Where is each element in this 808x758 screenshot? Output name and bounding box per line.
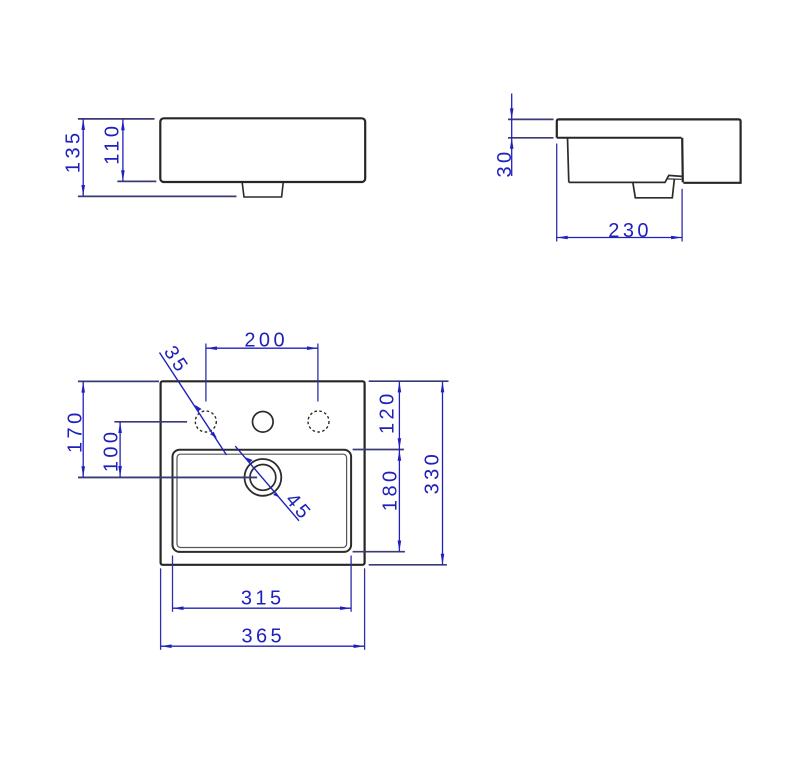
svg-text:120: 120	[377, 390, 399, 434]
svg-text:30: 30	[494, 148, 516, 177]
svg-text:365: 365	[242, 626, 286, 648]
svg-text:170: 170	[64, 409, 86, 453]
svg-text:230: 230	[608, 220, 652, 242]
svg-text:135: 135	[63, 130, 85, 174]
svg-text:100: 100	[100, 429, 122, 473]
svg-text:315: 315	[241, 588, 285, 610]
svg-text:110: 110	[102, 123, 124, 165]
svg-text:330: 330	[422, 451, 444, 495]
svg-text:200: 200	[244, 330, 288, 352]
svg-text:180: 180	[379, 468, 401, 512]
